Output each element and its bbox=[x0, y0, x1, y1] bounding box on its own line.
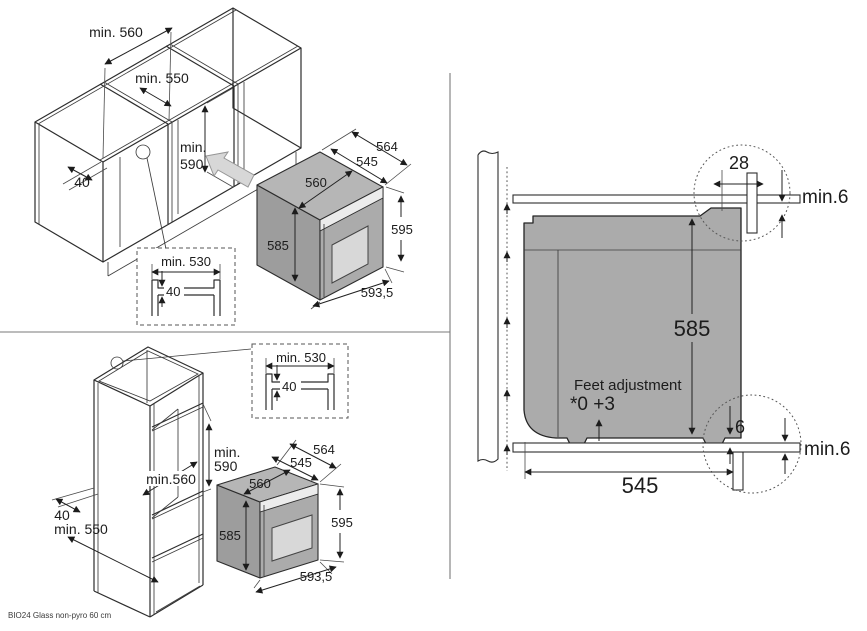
niche-height-label-2: 590 bbox=[180, 156, 204, 172]
oven-front-height-label: 595 bbox=[331, 515, 353, 530]
rear-cleat-top bbox=[747, 173, 757, 233]
oven-body-width-label: 560 bbox=[305, 175, 327, 190]
front-rail-label: 40 bbox=[74, 174, 90, 190]
oven-isometric-tall: 585 560 564 545 595 593,5 bbox=[217, 440, 353, 592]
oven-body-width-label: 560 bbox=[249, 476, 271, 491]
installation-diagram-page: min. 560 min. 550 min. 590 40 min. bbox=[0, 0, 867, 631]
oven-front-width-label: 593,5 bbox=[361, 285, 394, 300]
front-rail-dim: 40 bbox=[52, 488, 98, 523]
rear-top-gap-label: 28 bbox=[729, 153, 749, 173]
niche-depth-dim: min. 550 bbox=[135, 70, 189, 106]
detail-marker-circle bbox=[136, 145, 150, 159]
inset-width-label: min. 530 bbox=[161, 254, 211, 269]
niche-height-dim: min. 590 bbox=[203, 404, 240, 492]
inset-rail-label: 40 bbox=[282, 379, 296, 394]
depth-label: 545 bbox=[622, 473, 659, 498]
furniture-door-panel bbox=[478, 151, 498, 462]
oven-depth-total-label: 564 bbox=[376, 139, 398, 154]
oven-depth-body-label: 545 bbox=[356, 154, 378, 169]
detail-inset-undercounter: min. 530 40 bbox=[137, 248, 235, 325]
panel-tall-cabinet: min. 530 40 min. 590 min.560 bbox=[52, 344, 353, 617]
oven-depth-total-label: 564 bbox=[313, 442, 335, 457]
bottom-clearance-label: min.6 bbox=[804, 439, 850, 460]
oven-isometric-undercounter: 585 560 564 545 595 593,5 bbox=[257, 129, 413, 309]
oven-front-width-label: 593,5 bbox=[300, 569, 333, 584]
bottom-shelf bbox=[513, 443, 800, 452]
panel-undercounter: min. 560 min. 550 min. 590 40 min. bbox=[35, 8, 413, 325]
panel-side-section: 28 min.6 585 Feet adjustment *0 +3 6 bbox=[478, 145, 850, 498]
oven-body-height-label: 585 bbox=[219, 528, 241, 543]
niche-height-label-2: 590 bbox=[214, 458, 238, 474]
niche-height-label-1: min. bbox=[180, 139, 206, 155]
niche-depth-label: min. 550 bbox=[135, 70, 189, 86]
inset-width-label: min. 530 bbox=[276, 350, 326, 365]
rear-cleat-bottom bbox=[733, 452, 743, 490]
feet-note-line1: Feet adjustment bbox=[574, 377, 682, 394]
detail-inset-tall: min. 530 40 bbox=[252, 344, 348, 418]
rear-bottom-gap-label: 6 bbox=[735, 417, 745, 437]
inset-rail-label: 40 bbox=[166, 284, 180, 299]
top-clearance-dim: min.6 bbox=[782, 170, 848, 238]
oven-height-label: 585 bbox=[674, 316, 711, 341]
oven-depth-body-label: 545 bbox=[290, 455, 312, 470]
niche-depth-dim: min. 550 bbox=[54, 521, 158, 582]
niche-width-label: min.560 bbox=[146, 471, 196, 487]
niche-depth-label: min. 550 bbox=[54, 521, 108, 537]
niche-width-label: min. 560 bbox=[89, 24, 143, 40]
oven-body-height-label: 585 bbox=[267, 238, 289, 253]
oven-front-height-label: 595 bbox=[391, 222, 413, 237]
footer-model-label: BIO24 Glass non-pyro 60 cm bbox=[8, 611, 111, 620]
feet-note-line2: *0 +3 bbox=[570, 394, 615, 415]
diagram-canvas: min. 560 min. 550 min. 590 40 min. bbox=[0, 0, 867, 631]
top-clearance-label: min.6 bbox=[802, 187, 848, 208]
niche-width-dim: min.560 bbox=[143, 462, 197, 495]
insertion-direction-arrow bbox=[206, 152, 254, 187]
niche-width-dim: min. 560 bbox=[89, 24, 172, 158]
front-rail-dim: 40 bbox=[63, 162, 107, 190]
